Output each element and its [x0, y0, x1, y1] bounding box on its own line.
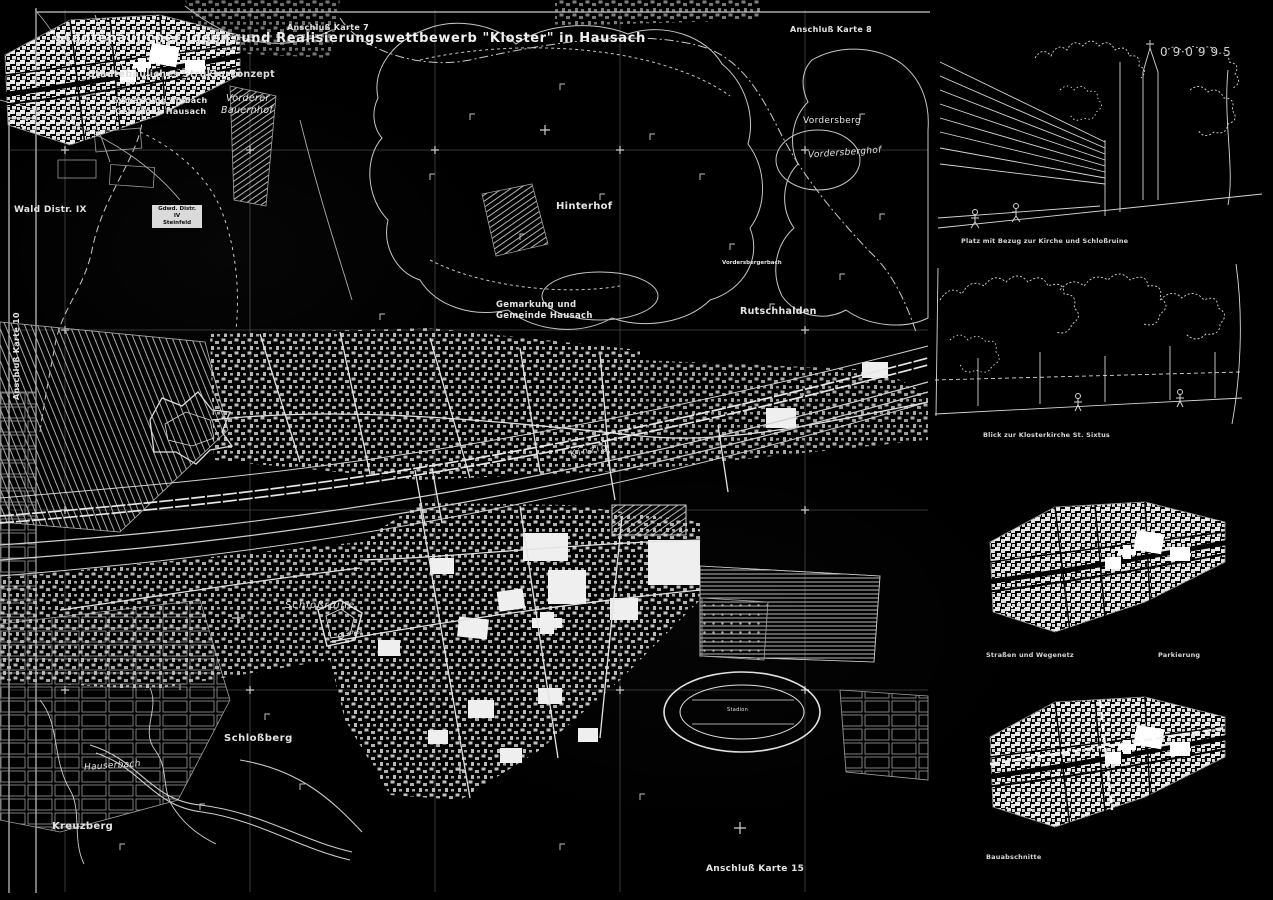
label-gdwd-line2: Steinfeld: [154, 220, 200, 227]
label-vordersbergerbach: Vordersbergerbach: [722, 260, 782, 266]
label-schlossberg: Schloßberg: [224, 733, 293, 745]
label-stadion: Stadion: [727, 708, 748, 714]
label-hinterhof: Hinterhof: [556, 201, 612, 213]
edge-label-bottom: Anschluß Karte 15: [706, 864, 804, 874]
sketch2-figures: [1074, 390, 1184, 412]
edge-label-left: Anschluß Karte 10: [12, 312, 21, 400]
label-gdwd-box: Gdwd. Distr. IV Steinfeld: [152, 205, 202, 228]
sheet-number: 090995: [1160, 46, 1236, 60]
caption-phases-map: Bauabschnitte: [986, 854, 1041, 861]
edge-label-top-left: Anschluß Karte 7: [287, 23, 369, 32]
sketch-figures: [971, 204, 1020, 229]
forest-outlines: [370, 23, 928, 329]
caption-network-map: Straßen und Wegenetz: [986, 652, 1074, 659]
label-schlossruine: Schloßruine: [285, 600, 355, 612]
inset-network-map: [985, 502, 1230, 632]
edge-settlement-strips: [185, 0, 760, 58]
map-artwork: [0, 0, 1273, 900]
label-kreuzberg: Kreuzberg: [52, 821, 113, 833]
map-sheet: Städtebaulicher Ideen- und Realisierungs…: [0, 0, 1273, 900]
label-gemarkung-einbach-1: Gemarkung Einbach: [112, 96, 207, 105]
label-rutschhalden: Rutschhalden: [740, 307, 817, 318]
label-vordersberg: Vordersberg: [803, 116, 861, 126]
sheet-title: Städtebaulicher Ideen- und Realisierungs…: [55, 32, 646, 47]
label-vorderer-1: Vorderer: [226, 94, 270, 105]
caption-sketch-monastery: Blick zur Klosterkirche St. Sixtus: [983, 432, 1110, 439]
sheet-subtitle: Städtebauliches Strukturkonzept: [88, 70, 275, 81]
sketch-church-square: [938, 40, 1262, 228]
label-gemarkung-einbach-2: Gemeinde Hausach: [115, 107, 206, 116]
edge-label-top-right: Anschluß Karte 8: [790, 25, 872, 34]
label-schloss: Schloß: [346, 631, 363, 637]
sketch-monastery-view: [935, 264, 1242, 424]
caption-parking: Parkierung: [1158, 652, 1200, 659]
label-gemarkung-hausach-1: Gemarkung und: [496, 301, 576, 311]
label-gdwd-line1: Gdwd. Distr. IV: [154, 206, 200, 220]
label-wald-distr: Wald Distr. IX: [14, 205, 87, 215]
caption-sketch-church-square: Platz mit Bezug zur Kirche und Schloßrui…: [961, 238, 1128, 245]
label-vorderer-2: Bauernhof: [221, 106, 273, 117]
label-gemarkung-hausach-2: Gemeinde Hausach: [496, 312, 593, 322]
